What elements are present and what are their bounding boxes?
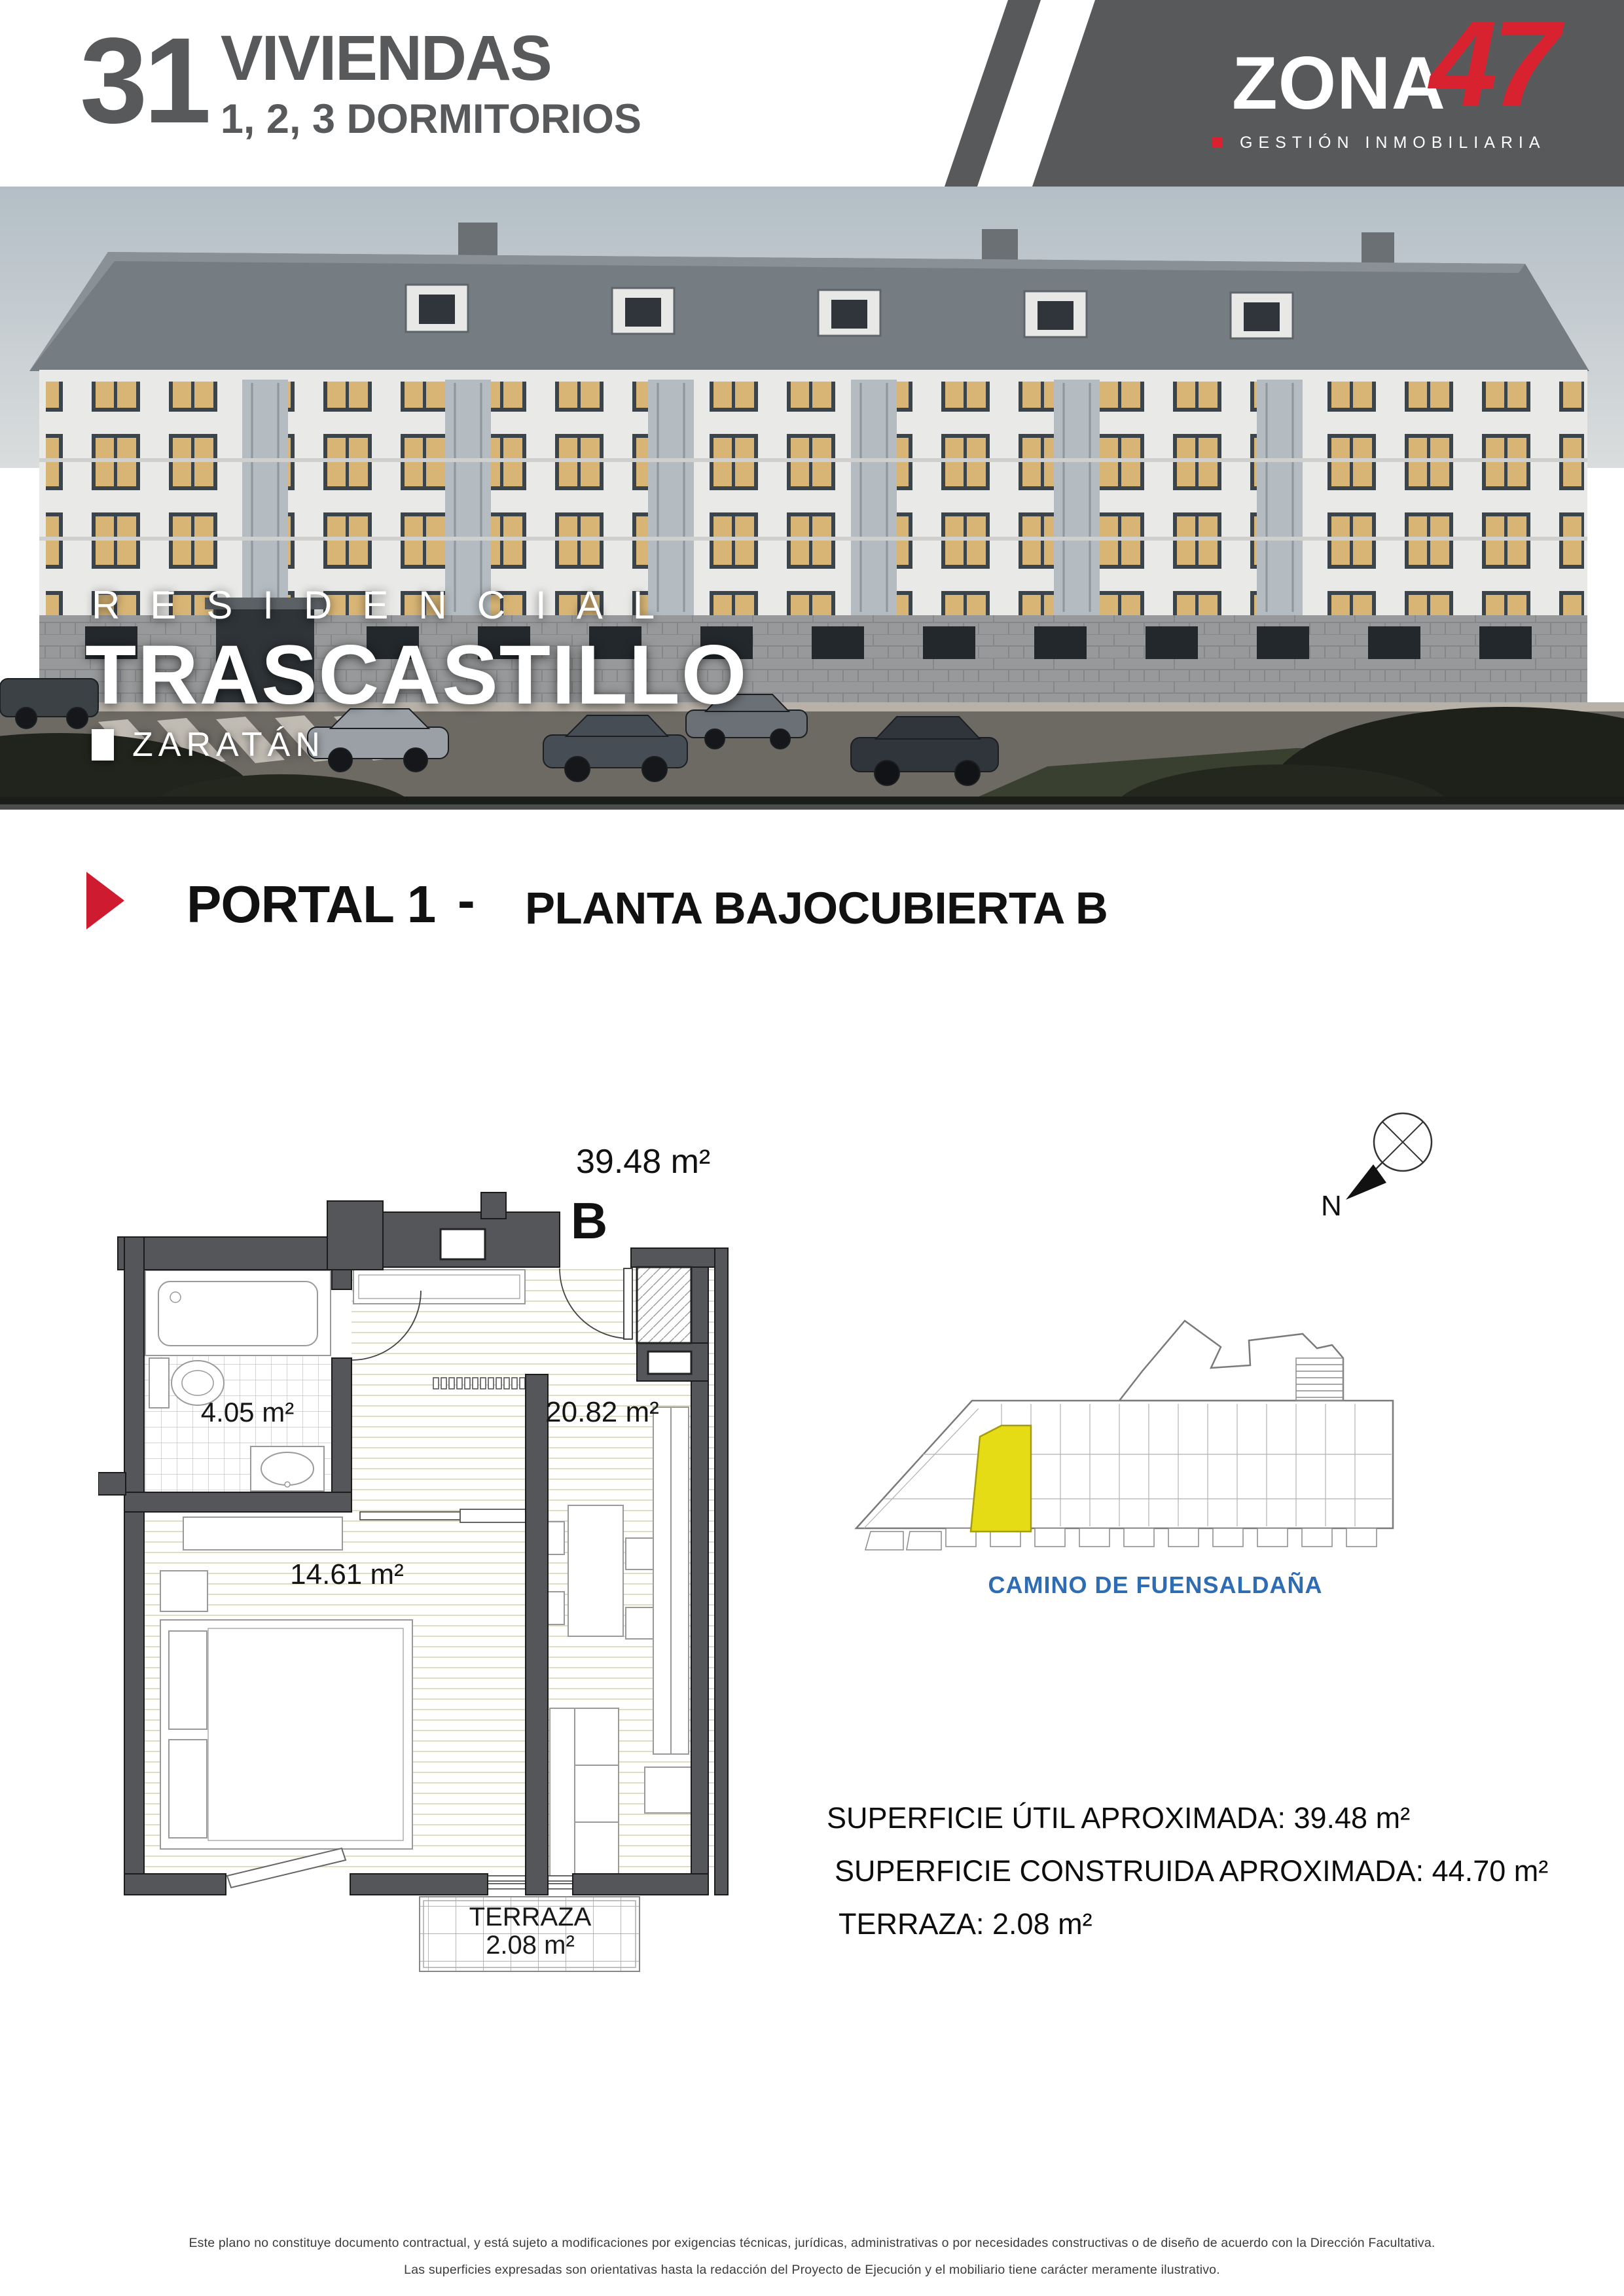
sink <box>251 1446 324 1491</box>
lightwell-window <box>441 1229 485 1259</box>
compass-north-label: N <box>1321 1190 1342 1222</box>
floor-plan: TERRAZA 2.08 m² <box>98 1191 746 2016</box>
footer-disclaimer-line1: Este plano no constituye documento contr… <box>0 2236 1624 2251</box>
title-separator: - <box>458 870 475 931</box>
sofa <box>550 1708 619 1878</box>
entry-closet <box>637 1267 691 1343</box>
units-sublabel: 1, 2, 3 DORMITORIOS <box>221 96 641 143</box>
logo-tagline-text: GESTIÓN INMOBILIARIA <box>1240 134 1546 152</box>
dresser <box>183 1517 342 1550</box>
units-count: 31 <box>80 31 208 132</box>
units-headline: 31 VIVIENDAS 1, 2, 3 DORMITORIOS <box>80 31 641 143</box>
plan-sheet-page: 31 VIVIENDAS 1, 2, 3 DORMITORIOS ZONA 47… <box>0 0 1624 2296</box>
logo-red-square-icon <box>1212 137 1222 147</box>
units-label: VIVIENDAS <box>221 31 641 85</box>
summary-construida: SUPERFICIE CONSTRUIDA APROXIMADA: 44.70 … <box>835 1854 1548 1888</box>
unit-letter-label: B <box>571 1192 607 1249</box>
bedroom-area-label: 14.61 m² <box>290 1558 404 1590</box>
street-name-label: CAMINO DE FUENSALDAÑA <box>988 1571 1323 1598</box>
site-balconies <box>865 1528 1377 1550</box>
portal-title: PORTAL 1 <box>187 874 435 935</box>
site-building-band <box>856 1401 1393 1528</box>
living-area-label: 20.82 m² <box>545 1396 659 1428</box>
facade <box>39 370 1587 619</box>
highlighted-unit <box>971 1426 1031 1532</box>
wardrobe <box>653 1407 689 1754</box>
footer-disclaimer-line2: Las superficies expresadas son orientati… <box>0 2263 1624 2278</box>
logo-block: ZONA 47 GESTIÓN INMOBILIARIA <box>1032 0 1624 187</box>
coffee-table <box>645 1767 697 1813</box>
logo-brand-text: ZONA <box>1232 41 1446 126</box>
hero-location: ZARATÁN <box>92 725 325 764</box>
site-upper-outline <box>1119 1321 1343 1401</box>
summary-terraza: TERRAZA: 2.08 m² <box>839 1907 1092 1941</box>
hero-title: TRASCASTILLO <box>85 627 748 723</box>
zona47-logo: ZONA 47 GESTIÓN INMOBILIARIA <box>1212 0 1579 187</box>
hero-pretitle: RESIDENCIAL <box>92 583 685 628</box>
floor-title: PLANTA BAJOCUBIERTA B <box>525 882 1108 934</box>
terrace-area-label: 2.08 m² <box>486 1931 575 1960</box>
nightstand <box>160 1571 208 1611</box>
summary-util: SUPERFICIE ÚTIL APROXIMADA: 39.48 m² <box>827 1801 1410 1835</box>
bathroom-area-label: 4.05 m² <box>201 1397 294 1427</box>
bed <box>160 1620 412 1849</box>
logo-number-text: 47 <box>1430 9 1555 118</box>
terrace: TERRAZA 2.08 m² <box>420 1897 640 1971</box>
diagonal-stripe-decoration <box>945 0 1041 187</box>
bathtub <box>145 1270 331 1355</box>
red-arrow-icon <box>86 872 124 929</box>
duct <box>648 1352 691 1374</box>
white-square-icon <box>92 729 114 761</box>
total-area-label: 39.48 m² <box>576 1142 710 1181</box>
site-plan: CAMINO DE FUENSALDAÑA <box>844 1309 1414 1600</box>
north-compass-icon: N <box>1303 1083 1466 1227</box>
hero-location-text: ZARATÁN <box>132 725 325 764</box>
photo-bottom-bar <box>0 804 1624 810</box>
terrace-label: TERRAZA <box>469 1903 592 1931</box>
